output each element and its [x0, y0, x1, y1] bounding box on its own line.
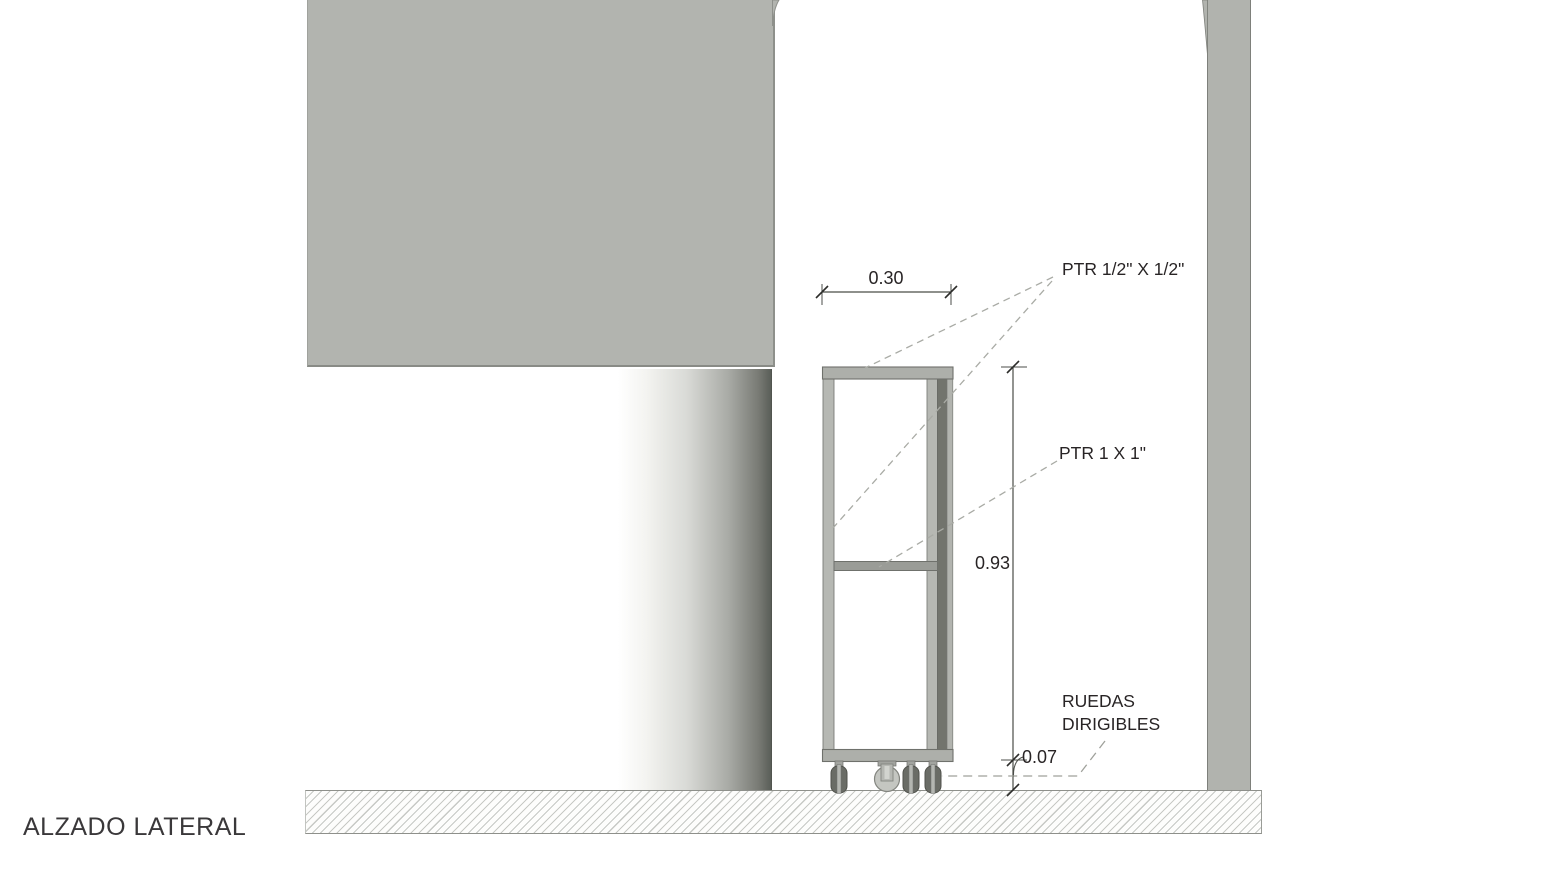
- view-title: ALZADO LATERAL: [23, 813, 246, 842]
- dim-width-label: 0.30: [840, 268, 932, 289]
- cart-line-art: [0, 0, 1563, 883]
- cart-right-outer-post: [947, 379, 953, 750]
- label-casters: RUEDAS DIRIGIBLES: [1062, 690, 1160, 735]
- cart-left-post: [823, 379, 834, 750]
- leader-ptr-large: [879, 461, 1057, 567]
- leader-ptr-small-1: [865, 277, 1053, 368]
- cart-top-rail: [823, 367, 954, 379]
- cart-right-dark-post: [938, 379, 948, 750]
- caster-fork-slot: [885, 766, 890, 779]
- caster-front-left: [831, 761, 847, 794]
- label-ptr-small-profile: PTR 1/2" X 1/2": [1062, 259, 1184, 280]
- caster-hub: [909, 765, 913, 794]
- caster-front-middle: [903, 761, 919, 794]
- side-elevation-drawing: 0.30 PTR 1/2" X 1/2" PTR 1 X 1" 0.93 0.0…: [0, 0, 1563, 883]
- column-arch-curve: [1203, 0, 1208, 55]
- caster-hub: [931, 765, 935, 794]
- cart-bottom-rail: [823, 750, 954, 762]
- label-casters-line1: RUEDAS: [1062, 690, 1160, 713]
- dim-height-label: 0.93: [975, 553, 1010, 574]
- caster-side-view: [875, 761, 900, 792]
- caster-hub: [837, 765, 841, 794]
- dimension-height: [1001, 361, 1027, 796]
- caster-front-right: [925, 761, 941, 794]
- label-casters-line2: DIRIGIBLES: [1062, 713, 1160, 736]
- label-ptr-large-profile: PTR 1 X 1": [1059, 443, 1146, 464]
- cart-middle-shelf: [834, 562, 938, 571]
- wall-arch-curve: [773, 0, 780, 26]
- cart-frame: [823, 367, 954, 762]
- dim-caster-height-label: 0.07: [1022, 747, 1057, 768]
